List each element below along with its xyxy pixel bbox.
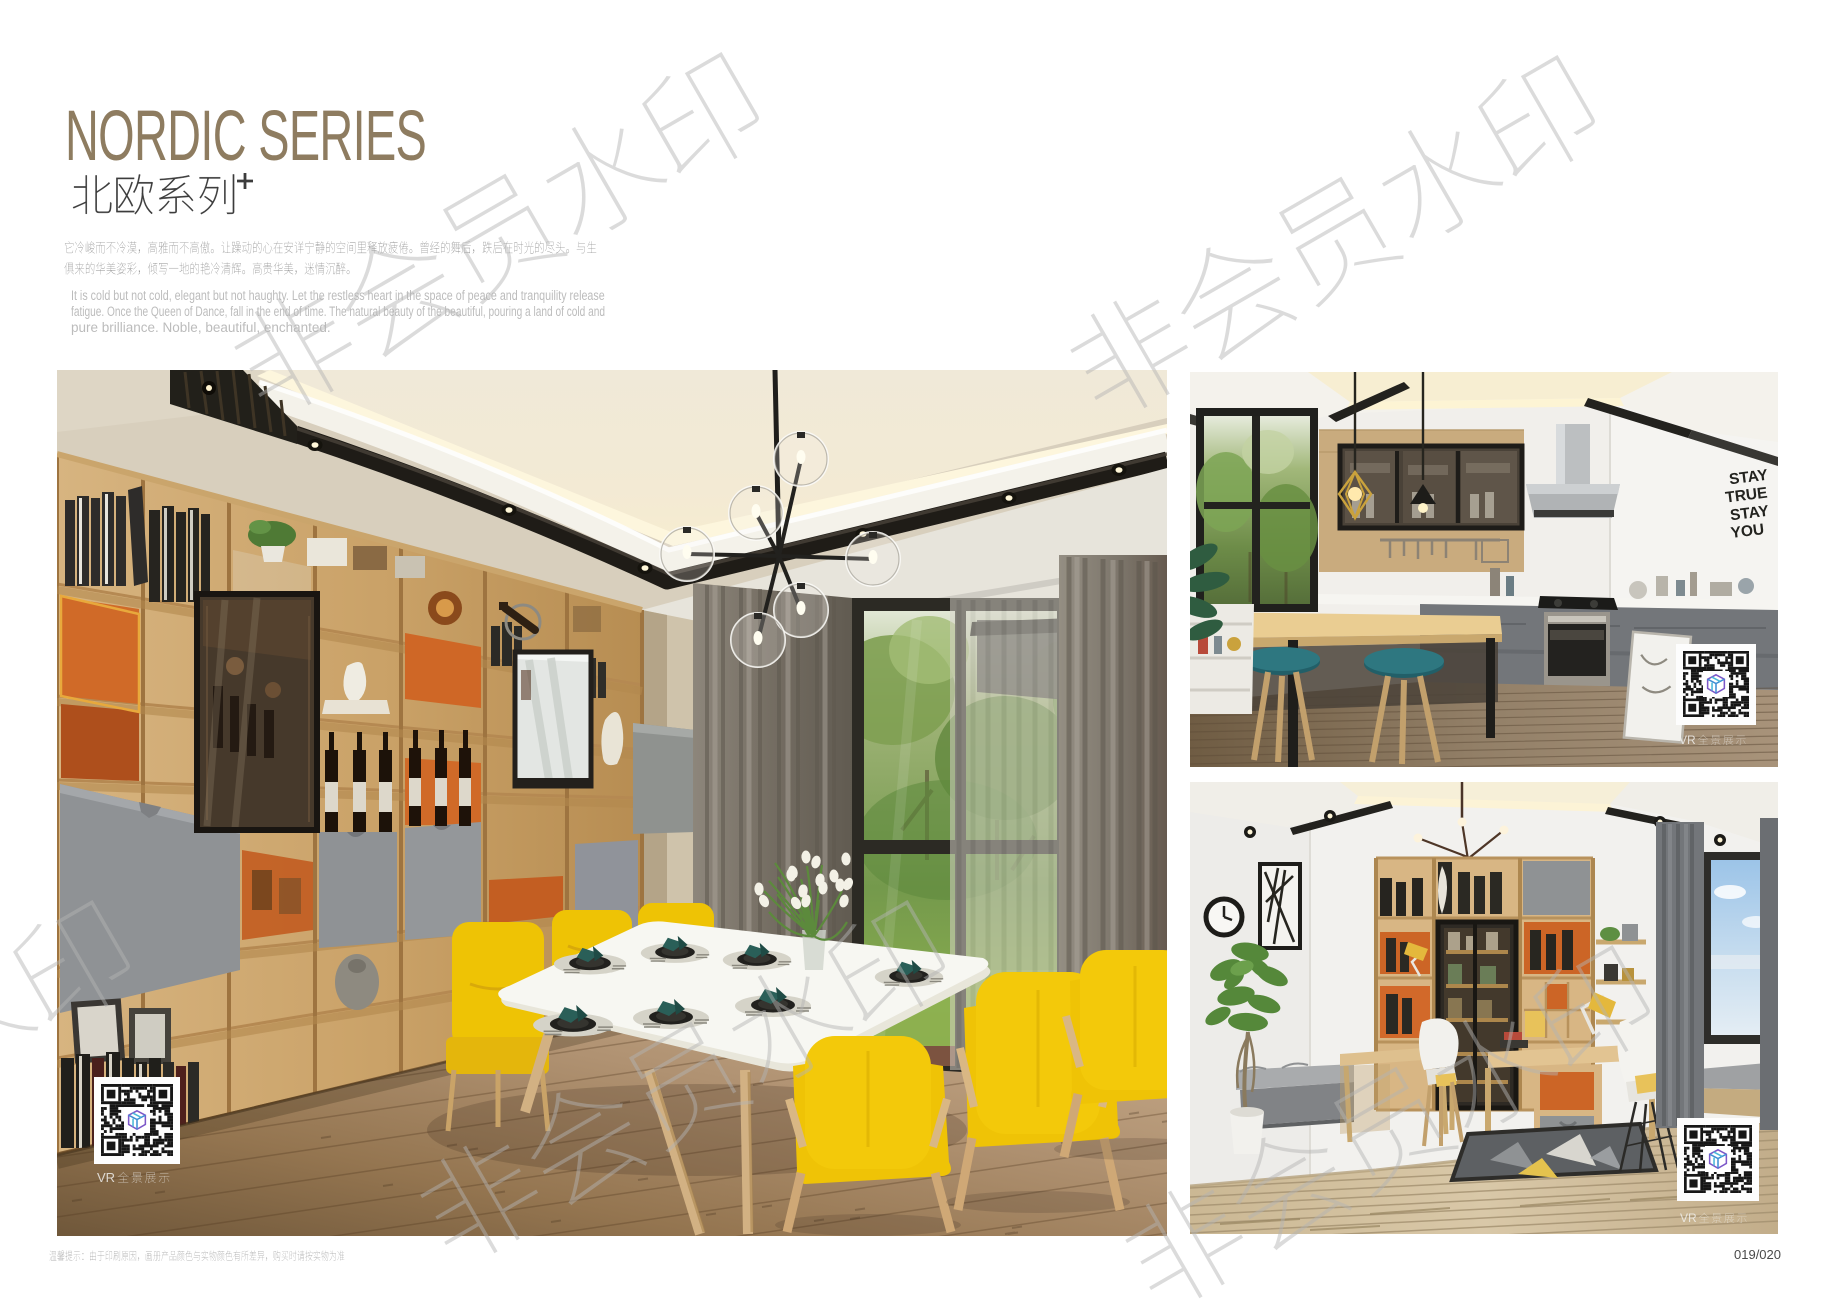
svg-text:VR: VR [97, 1170, 115, 1185]
svg-text:VR: VR [1679, 733, 1696, 747]
svg-text:VR: VR [1680, 1211, 1697, 1225]
